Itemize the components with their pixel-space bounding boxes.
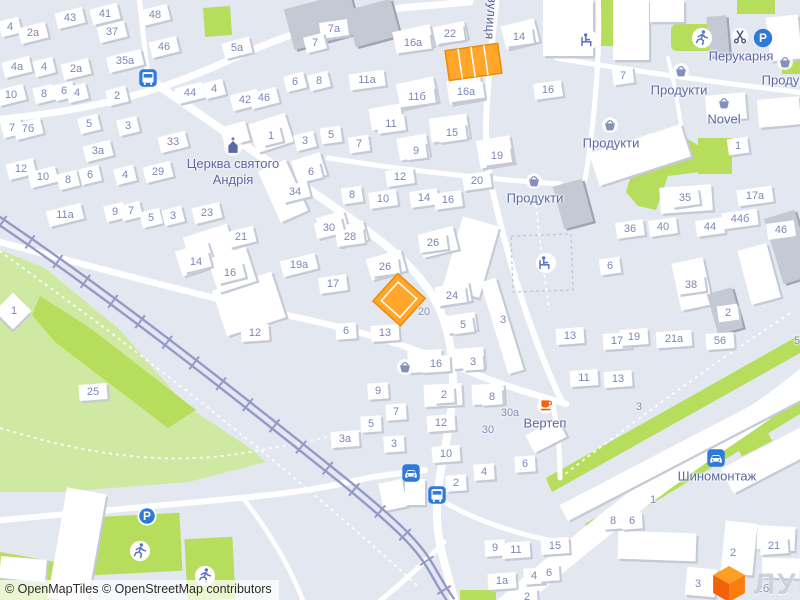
- map-canvas[interactable]: 42a43413748465a35a4a42a108642444424677б5…: [0, 0, 800, 600]
- cup-icon[interactable]: [536, 395, 556, 415]
- basket-icon[interactable]: [671, 61, 691, 81]
- parking-ring-icon[interactable]: P: [136, 505, 158, 527]
- poi-label: Вертеп: [524, 416, 567, 431]
- church-label-line1: Церква святого: [187, 156, 279, 172]
- svg-text:P: P: [759, 31, 767, 45]
- church-label: Церква святого Андрія: [187, 156, 279, 188]
- bus-icon[interactable]: [428, 486, 447, 505]
- seated-icon[interactable]: [577, 29, 599, 51]
- brand-text: ЛУН: [754, 568, 800, 600]
- svg-text:P: P: [143, 509, 151, 523]
- car-icon[interactable]: [707, 449, 726, 468]
- brand-cube-icon: [712, 566, 746, 600]
- church-icon[interactable]: [222, 135, 244, 157]
- parking-icon[interactable]: P: [752, 27, 774, 49]
- basket-icon[interactable]: [775, 52, 795, 72]
- scissors-icon[interactable]: [731, 28, 750, 47]
- map-attribution[interactable]: © OpenMapTiles © OpenStreetMap contribut…: [0, 580, 279, 600]
- basket-icon[interactable]: [395, 357, 415, 377]
- church-label-line2: Андрія: [187, 172, 279, 188]
- brand-watermark: ЛУН: [712, 566, 800, 600]
- poi-label: Novel: [707, 112, 740, 127]
- runner-icon[interactable]: [691, 27, 713, 49]
- poi-label: Шиномонтаж: [678, 469, 757, 484]
- basket-icon[interactable]: [714, 93, 734, 113]
- runner-icon[interactable]: [129, 540, 151, 562]
- bus-icon[interactable]: [139, 69, 158, 88]
- poi-label: Продукти: [651, 83, 708, 98]
- seated-icon[interactable]: [535, 252, 557, 274]
- basket-icon[interactable]: [524, 171, 544, 191]
- basket-icon[interactable]: [600, 115, 620, 135]
- poi-label: Перукарня: [709, 49, 774, 64]
- car-icon[interactable]: [402, 464, 421, 483]
- poi-label: Продукти: [507, 191, 564, 206]
- poi-label: Продукти: [583, 136, 640, 151]
- poi-label: Продукти: [762, 73, 800, 88]
